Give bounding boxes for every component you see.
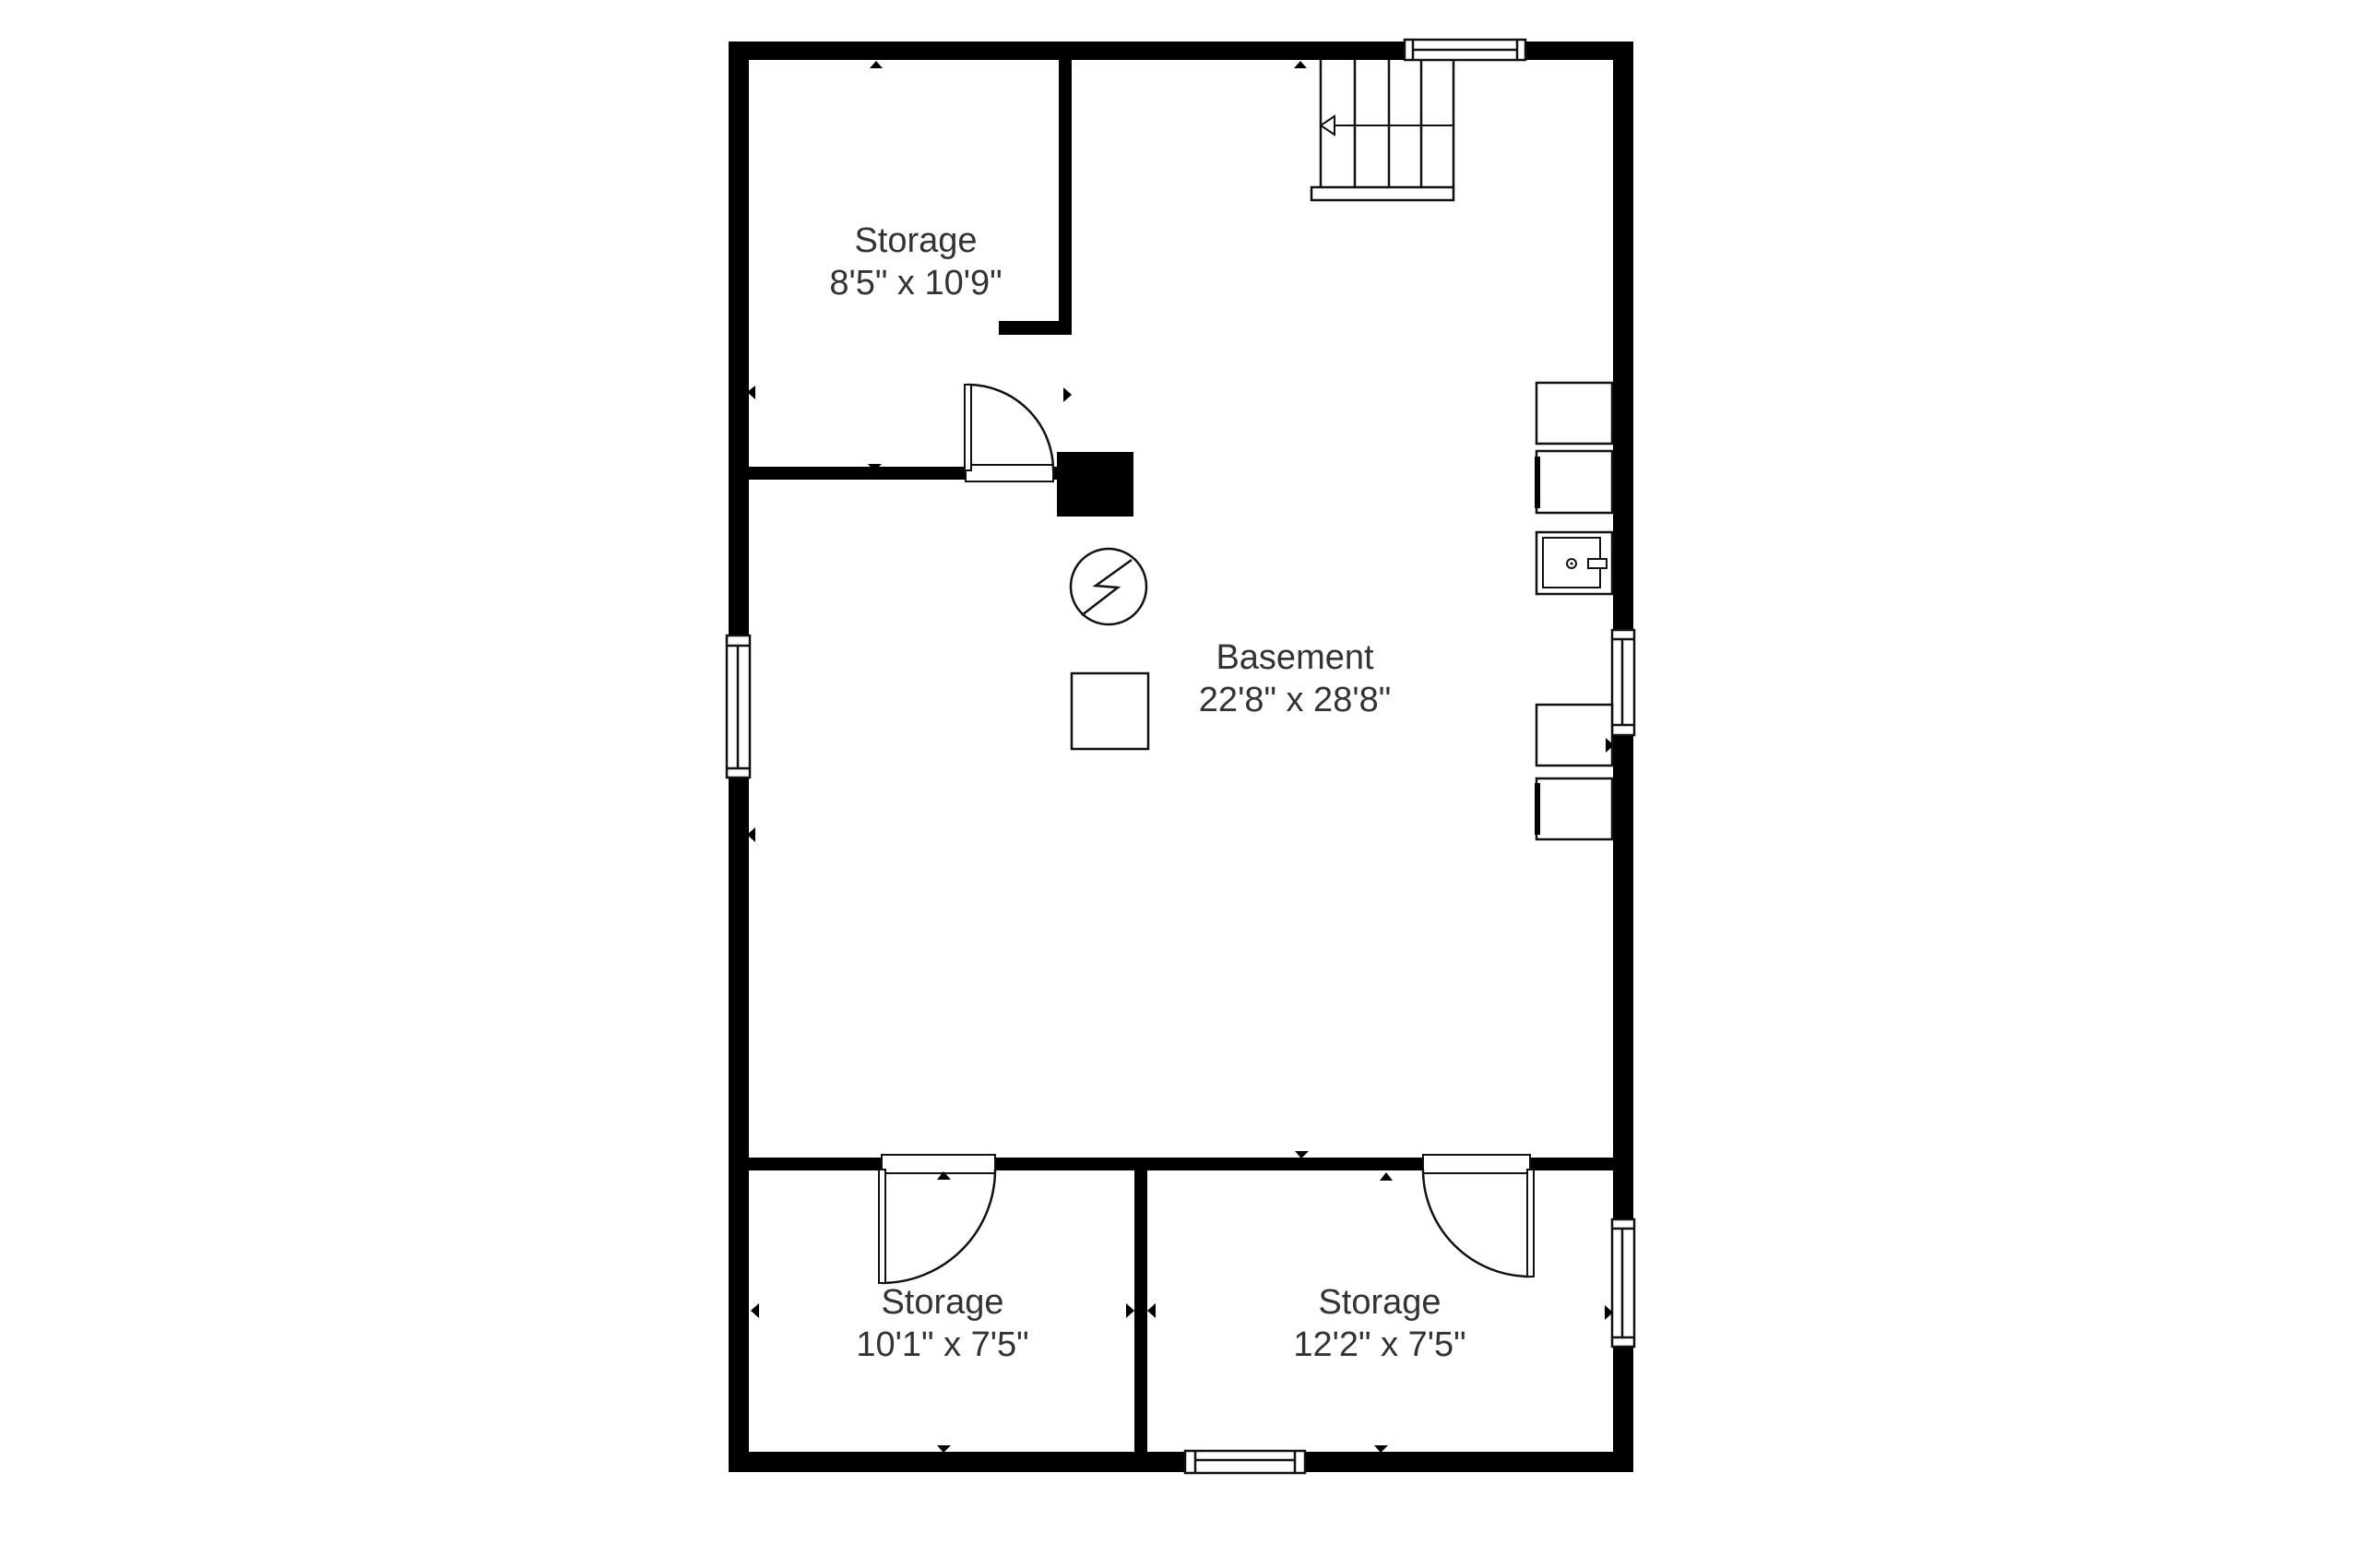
room-dimensions: 22'8" x 28'8": [1199, 679, 1391, 721]
door-storage-br: [1423, 1155, 1534, 1277]
wall-bottom-rooms-top-a: [749, 1158, 882, 1170]
dim-arrow-down-icon: [1374, 1445, 1388, 1453]
door-leaf: [1527, 1170, 1534, 1277]
room-name: Storage: [829, 220, 1002, 262]
room-dimensions: 12'2" x 7'5": [1293, 1324, 1465, 1366]
electric-meter-icon: [1071, 549, 1146, 624]
wall-bottom-rooms-top-c: [1530, 1158, 1613, 1170]
dim-arrow-up-icon: [870, 61, 883, 68]
box-door-edge: [1535, 457, 1540, 508]
floor-plan: Storage 8'5" x 10'9" Basement 22'8" x 28…: [0, 0, 2361, 1568]
door-swing-arc: [1423, 1170, 1530, 1277]
wall-bottom-rooms-divider: [1134, 1170, 1147, 1452]
window-left-wall: [727, 636, 750, 778]
room-label-basement: Basement 22'8" x 28'8": [1199, 636, 1391, 721]
window-right-wall-lower: [1612, 1219, 1634, 1347]
wall-outer-bottom: [729, 1452, 1633, 1472]
window-bottom-wall: [1185, 1451, 1305, 1473]
storage-box-1: [1536, 383, 1612, 444]
utility-pad: [1072, 673, 1148, 749]
dim-arrow-down-icon: [937, 1445, 951, 1453]
door-threshold: [1423, 1155, 1530, 1173]
room-name: Basement: [1199, 636, 1391, 679]
wall-bottom-rooms-top-b: [995, 1158, 1423, 1170]
room-label-storage-bottom-left: Storage 10'1" x 7'5": [856, 1281, 1028, 1366]
storage-box-2: [1535, 451, 1612, 513]
room-label-storage-bottom-right: Storage 12'2" x 7'5": [1293, 1281, 1465, 1366]
room-name: Storage: [1293, 1281, 1465, 1324]
wall-storage-tl-bottom: [749, 467, 966, 480]
window-right-wall-upper: [1612, 630, 1634, 735]
dim-arrow-down-icon: [1295, 1151, 1309, 1158]
door-threshold: [882, 1155, 995, 1173]
dim-arrow-right-icon: [1063, 387, 1072, 402]
box-door-edge: [1535, 783, 1540, 835]
door-storage-tl: [965, 385, 1053, 481]
appliance-washer: [1536, 532, 1612, 594]
door-storage-bl: [879, 1155, 995, 1283]
dim-arrow-right-icon: [1126, 1303, 1134, 1318]
wall-storage-tl-right: [1059, 60, 1072, 321]
room-dimensions: 10'1" x 7'5": [856, 1324, 1028, 1366]
appliance-handle: [1588, 559, 1607, 568]
door-swing-arc: [882, 1170, 995, 1283]
dim-arrow-left-icon: [1147, 1303, 1156, 1318]
door-leaf: [965, 385, 971, 470]
room-name: Storage: [856, 1281, 1028, 1324]
storage-box-4: [1535, 778, 1612, 839]
dim-arrow-up-icon: [1294, 61, 1307, 68]
dim-arrow-up-icon: [1380, 1172, 1393, 1181]
door-leaf: [879, 1170, 885, 1283]
door-threshold: [966, 465, 1053, 481]
dim-arrow-left-icon: [751, 1303, 759, 1318]
chimney-block: [1057, 452, 1133, 517]
wall-storage-tl-stub: [999, 321, 1072, 335]
room-label-storage-top-left: Storage 8'5" x 10'9": [829, 220, 1002, 304]
stairs-direction-arrow-icon: [1321, 116, 1335, 135]
door-swing-arc: [967, 385, 1053, 470]
stairs: [1311, 60, 1453, 200]
room-dimensions: 8'5" x 10'9": [829, 262, 1002, 304]
storage-box-3: [1536, 705, 1612, 766]
stair-landing: [1311, 187, 1453, 200]
floor-plan-drawing: [0, 0, 2361, 1568]
window-top-wall: [1405, 40, 1525, 60]
